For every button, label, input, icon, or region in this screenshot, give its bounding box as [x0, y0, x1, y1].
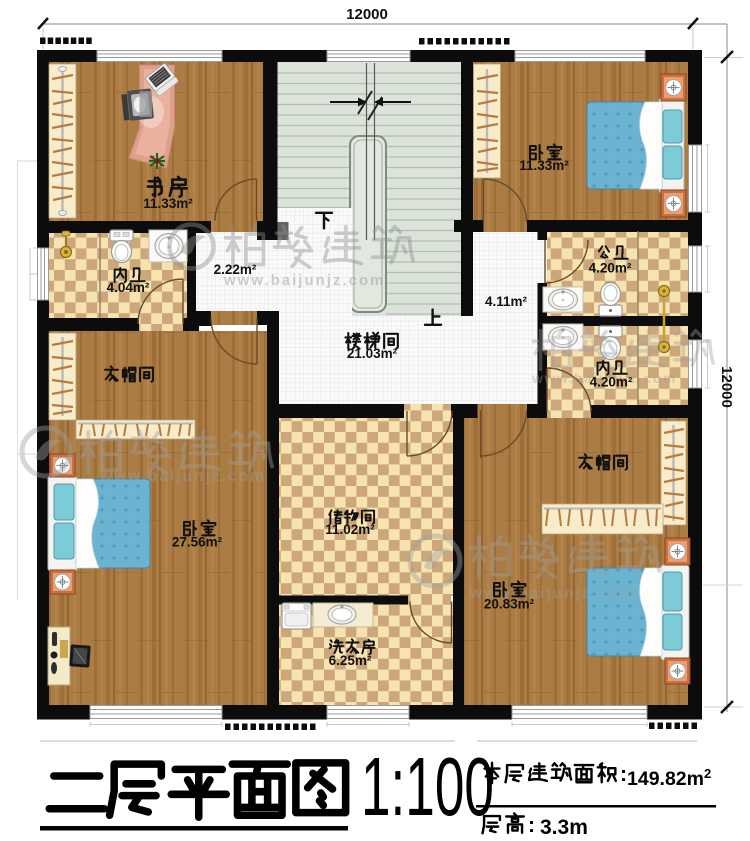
svg-text:11.33m²: 11.33m²	[143, 196, 193, 211]
svg-text:12000: 12000	[346, 6, 388, 23]
svg-text:11.02m²: 11.02m²	[325, 522, 375, 537]
svg-text:21.03m²: 21.03m²	[347, 346, 398, 361]
svg-text::: :	[620, 763, 627, 786]
svg-text:3.3m: 3.3m	[540, 816, 588, 839]
svg-text::: :	[528, 814, 535, 837]
svg-text:6.25m²: 6.25m²	[329, 653, 372, 668]
svg-text:4.20m²: 4.20m²	[589, 261, 632, 276]
svg-text:1:100: 1:100	[361, 740, 494, 833]
svg-text:4.20m²: 4.20m²	[590, 375, 633, 390]
svg-text:2.22m²: 2.22m²	[214, 262, 257, 277]
svg-text:11.33m²: 11.33m²	[519, 158, 569, 173]
svg-text:4.11m²: 4.11m²	[485, 294, 528, 309]
svg-text:12000: 12000	[718, 366, 735, 408]
svg-text:149.82m2: 149.82m2	[627, 766, 711, 790]
svg-text:20.83m²: 20.83m²	[484, 597, 535, 612]
svg-text:4.04m²: 4.04m²	[107, 280, 150, 295]
svg-text:27.56m²: 27.56m²	[172, 535, 223, 550]
svg-text:www.baijunjz.com: www.baijunjz.com	[99, 468, 266, 485]
